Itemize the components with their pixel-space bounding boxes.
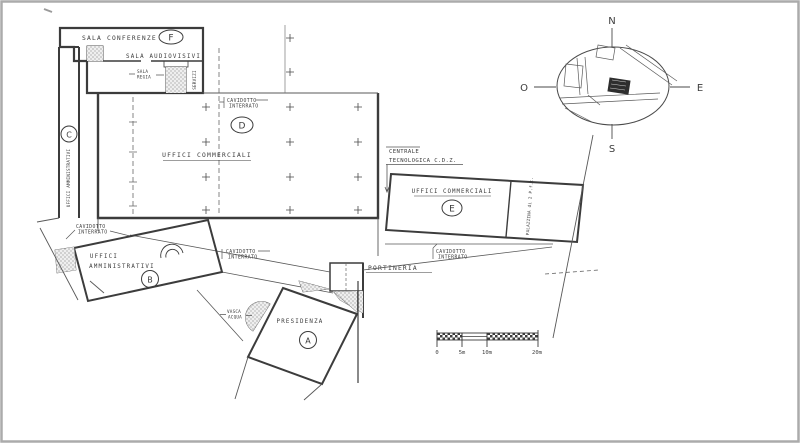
building-b-hatch-wedge-dots [55,247,76,273]
site-plan-sheet: SALA CONFERENZE F SALA AUDIOVISIVI SALA … [0,0,800,443]
cavidotto-mid-line1: CAVIDOTTO [226,249,256,255]
site-plan-drawing: SALA CONFERENZE F SALA AUDIOVISIVI SALA … [0,0,800,443]
vasca-label-line1: VASCA [227,309,241,315]
compass-east-label: E [697,83,703,94]
stair-block-2-hatch [166,67,186,93]
cavidotto-c-line1: CAVIDOTTO [76,224,106,230]
inset-site-block [608,78,630,94]
building-d-label: UFFICI COMMERCIALI [162,152,252,159]
building-b-label-line2: AMMINISTRATIVI [89,264,155,270]
building-d-letter: D [239,122,246,132]
cavidotto-c-line2: INTERRATO [78,230,108,236]
paper-background [0,0,800,443]
cavidotto-d-line1: CAVIDOTTO [227,98,257,104]
building-e-label: UFFICI COMMERCIALI [412,189,493,195]
servizi-label: SERVIZI [192,70,198,90]
vasca-label-line2: ACQUA [228,315,242,321]
compass-north-label: N [608,16,615,27]
sala-audiovisivi-label: SALA AUDIOVISIVI [126,54,201,60]
scale-label-10m: 10m [482,350,493,356]
building-a-label: PRESIDENZA [277,319,324,325]
building-b-letter: B [147,276,153,285]
sala-conferenze-label: SALA CONFERENZE [82,35,157,42]
building-f-letter: F [168,34,173,44]
cavidotto-e-line1: CAVIDOTTO [436,249,466,255]
cavidotto-d-line2: INTERRATO [229,104,259,110]
scale-label-0: 0 [435,350,438,356]
sala-regia-label-line2: REGIA [137,75,151,81]
cavidotto-mid-line2: INTERRATO [228,255,258,261]
scale-seg-10-20 [487,333,538,340]
scale-label-20m: 20m [532,350,543,356]
building-c-letter: C [66,131,72,140]
building-e-letter: E [449,205,455,215]
centrale-line1: CENTRALE [389,149,419,155]
centrale-line2: TECNOLOGICA C.D.Z. [389,158,457,164]
building-c-label: UFFICI AMMINISTRATIVI [66,149,72,208]
compass-south-label: S [609,144,615,155]
scale-seg-0-5 [437,333,462,340]
building-a-letter: A [305,337,311,346]
compass-west-label: O [520,83,528,94]
scale-label-5m: 5m [459,350,466,356]
sala-regia-label-line1: SALA [137,69,148,75]
stair-block-1-hatch [87,46,103,61]
building-b-label-line1: UFFICI [90,254,118,260]
